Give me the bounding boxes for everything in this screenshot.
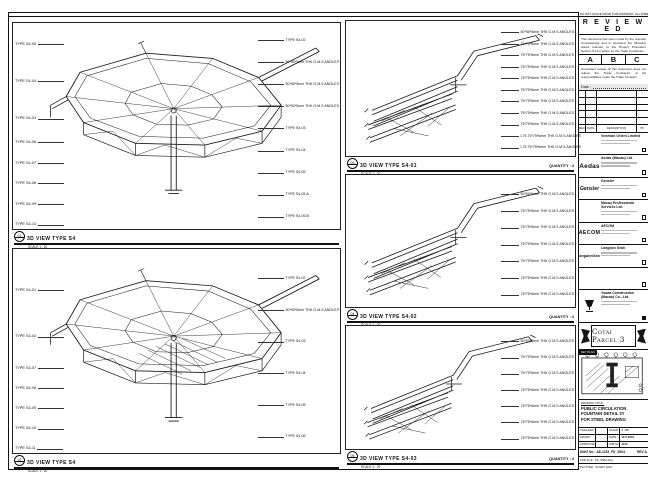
- callout-label: TYPE S4-06: [258, 435, 305, 439]
- callout-label: TYPE S4-10: [15, 223, 64, 227]
- callout-label: 75*75*6mm THK G.M.S ANGLES: [501, 43, 574, 47]
- callout-label: 75*75*6mm THK G.M.S ANGLES: [501, 210, 574, 214]
- consultant-name: Venetian Orient Limited: [601, 135, 642, 139]
- callout-label: 75*75*6mm THK G.M.S ANGLES: [501, 260, 574, 264]
- grade-a-cell: A: [579, 55, 602, 64]
- project-banner: Cotai Parcel 3: [579, 323, 648, 350]
- drawing-title-line-3: FOR STEEL DRAWING: [581, 417, 646, 422]
- callout-label: TYPE S4-04: [258, 372, 305, 376]
- consultant-name: Gensler: [601, 180, 642, 184]
- callout-label: TYPE S4-05: [258, 171, 305, 175]
- callout-label: 75*75*6mm THK G.M.S ANGLES: [501, 100, 574, 104]
- consultant-name: Aedas (Macau) Ltd.: [601, 157, 642, 161]
- revision-blank-rows: [579, 91, 648, 124]
- panel-3d-view-type-s4-bottom: TYPE S4-01TYPE S4-02 TYPE S4-07TYPE S4-0…: [12, 248, 341, 454]
- callout-label: TYPE S4-03: [258, 127, 305, 131]
- callout-label: TYPE S4-06: [15, 141, 64, 145]
- callout-label: 75*75*6mm THK G.M.S ANGLES: [501, 226, 574, 230]
- scale-label: SCALE 1 : 20: [28, 470, 339, 473]
- consultant-name: AECOM: [601, 225, 642, 229]
- date-line: Date :: [579, 84, 648, 90]
- review-checkbox: [642, 215, 647, 220]
- callout-label: 50*50*5mm THK G.M.S ANGLES: [501, 193, 574, 197]
- callout-label: TYPE S4-02: [258, 277, 305, 281]
- description-col-header: DESCRIPTION: [597, 125, 637, 132]
- revision-value: REV A: [637, 450, 647, 454]
- info-value: -: [596, 442, 608, 448]
- consultant-logo-text: Gensler: [580, 186, 599, 192]
- quantity-label: QUANTITY : 4: [549, 165, 574, 169]
- detail-bubble: 01: [14, 231, 25, 242]
- panel-3d-view-type-s4-top: TYPE S4-05TYPE S4-04TYPE S4-03 TYPE S4-0…: [12, 22, 341, 230]
- consultant-row: Macau Professional Services Ltd.: [579, 200, 648, 222]
- review-checkbox: [642, 238, 647, 243]
- consultant-row: LangdonSeah Langdon Seah: [579, 245, 648, 267]
- review-grade-row: A B C: [579, 54, 648, 65]
- date-col-header: DATE: [586, 125, 597, 132]
- view-title: 3D VIEW TYPE S4-02: [360, 315, 417, 320]
- callout-label: 50*50*5mm THK G.M.S ANGLES: [258, 105, 339, 109]
- callout-label: TYPE S4-09: [15, 203, 64, 207]
- callout-label: TYPE S4-09: [15, 407, 64, 411]
- dwg-no-value: AE-1153_FD_S504: [596, 450, 625, 454]
- drawing-info-table: CHECKED - SCALE 1 : 20 DRAWN - DATE 10-5…: [579, 428, 648, 470]
- consultant-logo: Aedas: [579, 155, 600, 176]
- callout-label: TYPE S4-08: [15, 387, 64, 391]
- project-name: Cotai Parcel 3: [592, 328, 635, 344]
- callout-label: TYPE S4-10: [15, 427, 64, 431]
- address-line: [601, 233, 630, 234]
- cad-drawing-sheet: { "sheet": { "frame_note": "DO NOT SCALE…: [0, 0, 650, 488]
- revision-table: REV DATE DESCRIPTION BY: [579, 91, 648, 133]
- callout-column: 50*50*5mm THK G.M.S ANGLES75*75*6mm THK …: [501, 193, 573, 297]
- callout-column-left: TYPE S4-01TYPE S4-02: [15, 289, 85, 339]
- callout-label: TYPE S4-04: [15, 80, 64, 84]
- address-line: [601, 143, 630, 144]
- info-key: SCALE: [608, 428, 620, 434]
- address-line: [601, 304, 630, 305]
- date-label: Date :: [581, 85, 591, 89]
- view-title: 3D VIEW TYPE S4-01: [360, 164, 417, 169]
- callout-column-mast: TYPE S4-07TYPE S4-08TYPE S4-09TYPE S4-10…: [15, 367, 85, 451]
- review-checkbox: [642, 148, 647, 153]
- caption-left-bottom: 02 3D VIEW TYPE S4 SCALE 1 : 20: [12, 455, 341, 473]
- callout-column-right: TYPE S4-0250*50*5mm THK G.M.S ANGLES50*5…: [258, 39, 338, 219]
- callout-label: TYPE S4-05.A: [258, 193, 309, 197]
- panel-3d-view-type-s4-01: 50*50*5mm THK G.M.S ANGLES75*75*6mm THK …: [345, 20, 576, 157]
- info-key: CHECKED: [579, 428, 596, 434]
- contractor-name: Yuada Construction (Macau) Co., Ltd.: [601, 292, 642, 299]
- callout-label: 75*75*6mm THK G.M.S ANGLES: [501, 54, 574, 58]
- info-row: DRAWN - DATE 10-5-2010: [579, 435, 648, 442]
- detail-bubble: 04: [347, 309, 358, 320]
- consultant-name: Langdon Seah: [601, 247, 642, 251]
- callout-column-left: TYPE S4-05TYPE S4-04TYPE S4-03: [15, 43, 85, 121]
- info-key: JOB No: [608, 442, 620, 448]
- consultant-row: Venetian Orient Limited: [579, 133, 648, 155]
- consultant-logo: LangdonSeah: [579, 245, 600, 266]
- info-key: DRAWN: [579, 435, 596, 441]
- reviewed-stamp: R E V I E W E D This document has been n…: [579, 17, 648, 91]
- key-plan: KEY PLAN: [579, 350, 648, 400]
- address-line: [601, 230, 637, 231]
- info-key: APPROVED: [579, 442, 596, 448]
- callout-label: 75*75*6mm THK G.M.S ANGLES: [501, 89, 574, 93]
- callout-label: TYPE S4-05: [258, 404, 305, 408]
- address-line: [601, 255, 630, 256]
- callout-label: 50*50*5mm THK G.M.S ANGLES: [501, 31, 574, 35]
- key-plan-label: KEY PLAN: [579, 350, 597, 355]
- callout-label: 75*75*6mm THK G.M.S ANGLES: [501, 77, 574, 81]
- address-line: [601, 185, 637, 186]
- info-rows: CHECKED - SCALE 1 : 20 DRAWN - DATE 10-5…: [579, 428, 648, 448]
- address-line: [601, 162, 637, 163]
- consultant-logo: [579, 200, 600, 221]
- callout-label: 75*75*6mm THK G.M.S ANGLES: [501, 66, 574, 70]
- info-value: 1 : 20: [620, 428, 648, 434]
- dwg-number-row: DWG No : AE-1153_FD_S504 REV A: [579, 448, 648, 456]
- revision-header-row: REV DATE DESCRIPTION BY: [579, 124, 648, 132]
- callout-label: 75*75*6mm THK G.M.S ANGLES: [501, 356, 574, 360]
- address-line: [601, 301, 637, 302]
- callout-label: 50*50*5mm THK G.M.S ANGLES: [258, 61, 339, 65]
- address-line: [601, 252, 637, 253]
- callout-label: TYPE S4-07: [15, 162, 64, 166]
- review-checkbox: [642, 193, 647, 198]
- drawing-title-box: DRAWING TITLE : PUBLIC CIRCULATION FOUNT…: [579, 400, 648, 428]
- reviewed-title: R E V I E W E D: [579, 17, 648, 35]
- drawing-title-label: DRAWING TITLE :: [581, 401, 646, 405]
- info-value: 1153: [620, 442, 648, 448]
- view-title: 3D VIEW TYPE S4: [27, 237, 76, 242]
- contractor-checkbox: [642, 316, 647, 321]
- detail-bubble: 03: [347, 158, 358, 169]
- consultant-logo-text: Aedas: [579, 163, 600, 170]
- revision-row: [579, 91, 648, 98]
- detail-bubble: 02: [14, 455, 25, 466]
- consultant-logo: [579, 133, 600, 154]
- grade-c-cell: C: [626, 55, 648, 64]
- view-title: 3D VIEW TYPE S4-03: [360, 457, 417, 462]
- by-col-header: BY: [637, 125, 648, 132]
- callout-column: 50*50*5mm THK G.M.S ANGLES75*75*6mm THK …: [501, 31, 573, 150]
- callout-label: 75*75*6mm THK G.M.S ANGLES: [501, 421, 574, 425]
- consultant-name: Macau Professional Services Ltd.: [601, 202, 642, 209]
- callout-label: 75*75*6mm THK G.M.S ANGLES: [501, 112, 574, 116]
- callout-label: 50*50*5mm THK G.M.S ANGLES: [501, 340, 574, 344]
- callout-label: 50*50*5mm THK G.M.S ANGLES: [258, 83, 339, 87]
- consultant-row: [579, 268, 648, 290]
- contractor-logo: [579, 290, 600, 322]
- banner-ornament-left-icon: [581, 329, 590, 344]
- callout-label: TYPE S4-08: [15, 182, 64, 186]
- date-fill-line: [593, 85, 646, 89]
- address-line: [601, 140, 637, 141]
- callout-label: 75*75*6mm THK G.M.S ANGLES: [501, 277, 574, 281]
- consultant-rows: Venetian Orient Limited Aedas Aedas (Mac…: [579, 133, 648, 290]
- callout-label: TYPE S4-02: [15, 335, 64, 339]
- consultant-row: AECOM AECOM: [579, 223, 648, 245]
- view-title: 3D VIEW TYPE S4: [27, 461, 76, 466]
- trophy-logo-icon: [583, 299, 596, 313]
- reviewed-paragraph-1: This document has been noted by the rele…: [579, 35, 648, 54]
- cad-file-line: CAD FILE : FD_S504.dwg: [579, 457, 648, 464]
- callout-label: TYPE S4-03: [15, 117, 64, 121]
- dwg-no-label: DWG No :: [580, 450, 595, 454]
- info-row: CHECKED - SCALE 1 : 20: [579, 428, 648, 435]
- callout-label: TYPE S4-02: [258, 39, 305, 43]
- consultant-logo: Gensler: [579, 178, 600, 199]
- caption-mid-3: 05 3D VIEW TYPE S4-03 QUANTITY : 4 SCALE…: [345, 451, 576, 469]
- callout-label: 75*75*6mm THK G.M.S ANGLES: [501, 389, 574, 393]
- revision-row: [579, 105, 648, 112]
- panel-3d-view-type-s4-02: 50*50*5mm THK G.M.S ANGLES75*75*6mm THK …: [345, 174, 576, 308]
- revision-row: [579, 98, 648, 105]
- consultant-logo: [579, 268, 600, 289]
- scale-label: SCALE 1 : 20: [361, 466, 574, 469]
- contractor-row: Yuada Construction (Macau) Co., Ltd.: [579, 290, 648, 323]
- panel-3d-view-type-s4-03: 50*50*5mm THK G.M.S ANGLES75*75*6mm THK …: [345, 325, 576, 450]
- callout-label: 75*75*6mm THK G.M.S ANGLES: [501, 293, 574, 297]
- consultant-logo: AECOM: [579, 223, 600, 244]
- consultant-row: Aedas Aedas (Macau) Ltd.: [579, 155, 648, 177]
- caption-left-top: 01 3D VIEW TYPE S4 SCALE 1 : 20: [12, 231, 341, 249]
- rev-col-header: REV: [579, 125, 586, 132]
- callout-label: 50*50*5mm THK G.M.S ANGLES: [258, 309, 339, 313]
- title-block: DO NOT SCALE FROM THIS DRAWING. ALL DIME…: [578, 12, 648, 470]
- callout-label: TYPE S4-05.B: [258, 215, 309, 219]
- callout-label: 75*75*6mm THK G.M.S ANGLES: [501, 405, 574, 409]
- callout-column-right: TYPE S4-0250*50*5mm THK G.M.S ANGLESTYPE…: [258, 277, 338, 439]
- info-row: APPROVED - JOB No 1153: [579, 442, 648, 449]
- review-checkbox: [642, 170, 647, 175]
- review-checkbox: [642, 260, 647, 265]
- address-line: [601, 211, 637, 212]
- banner-ornament-right-icon: [637, 329, 646, 344]
- callout-label: 75*75*6mm THK G.M.S ANGLES: [501, 243, 574, 247]
- consultant-logo-text: AECOM: [579, 230, 600, 236]
- reviewed-paragraph-2: Consultant review of this document does …: [579, 65, 648, 80]
- address-line: [601, 165, 630, 166]
- info-key: DATE: [608, 435, 620, 441]
- callout-label: TYPE S4-05: [15, 43, 64, 47]
- address-line: [601, 188, 630, 189]
- address-line: [601, 214, 630, 215]
- quantity-label: QUANTITY : 4: [549, 458, 574, 462]
- detail-bubble: 05: [347, 451, 358, 462]
- callout-label: 75*75*6mm THK G.M.S ANGLES: [501, 123, 574, 127]
- quantity-label: QUANTITY : 4: [549, 316, 574, 320]
- callout-label: 75*75*6mm THK G.M.S ANGLES: [501, 372, 574, 376]
- callout-label: TYPE S4-04: [258, 149, 305, 153]
- sheet-border-inner-line: [8, 16, 647, 17]
- callout-label: TYPE S4-03: [258, 340, 305, 344]
- review-checkbox: [642, 282, 647, 287]
- key-plan-drawing: [580, 351, 646, 397]
- info-value: 10-5-2010: [620, 435, 648, 441]
- info-value: -: [596, 435, 608, 441]
- consultant-row: Gensler Gensler: [579, 178, 648, 200]
- consultant-logo-text: LangdonSeah: [579, 254, 600, 258]
- plot-date-line: PLOTTED : 10 MAY 2010: [579, 464, 648, 470]
- callout-column: 50*50*5mm THK G.M.S ANGLES75*75*6mm THK …: [501, 340, 573, 441]
- revision-row: [579, 111, 648, 118]
- callout-column-mast: TYPE S4-06TYPE S4-07TYPE S4-08TYPE S4-09…: [15, 141, 85, 227]
- callout-label: TYPE S4-07: [15, 367, 64, 371]
- callout-label: TYPE S4-01: [15, 289, 64, 293]
- callout-label: L75 75*75*6mm THK G.M.S ANGLES: [501, 135, 581, 139]
- callout-label: 75*75*6mm THK G.M.S ANGLES: [501, 437, 574, 441]
- grade-b-cell: B: [602, 55, 625, 64]
- callout-label: L75 75*75*6mm THK G.M.S ANGLES: [501, 146, 581, 150]
- info-value: -: [596, 428, 608, 434]
- callout-label: TYPE S4-11: [15, 447, 63, 451]
